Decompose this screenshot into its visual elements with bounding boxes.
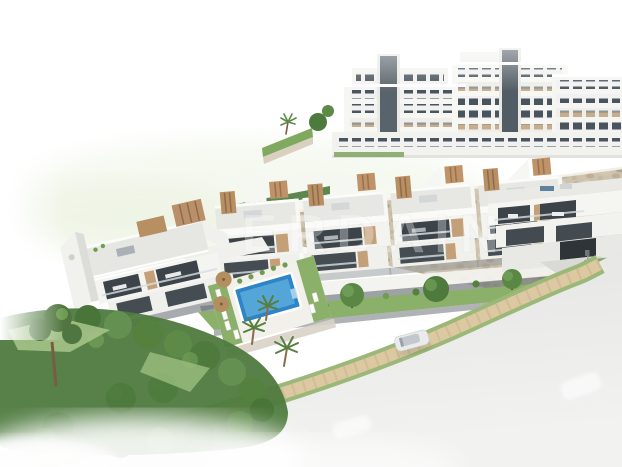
tree-icon xyxy=(322,105,334,117)
wood-pergola xyxy=(220,191,237,214)
wood-pergola xyxy=(269,180,288,199)
wood-pergola xyxy=(357,173,376,192)
apartment-base-hedge xyxy=(334,152,404,157)
wood-pergola xyxy=(444,165,463,184)
wood-pergola xyxy=(483,168,500,191)
architectural-render-canvas: ERDAIN xyxy=(0,0,622,467)
render-scene: ERDAIN xyxy=(0,0,622,467)
wood-pergola xyxy=(395,176,412,199)
watermark-text: ERDAIN xyxy=(241,204,508,264)
wood-pergola xyxy=(532,157,551,176)
